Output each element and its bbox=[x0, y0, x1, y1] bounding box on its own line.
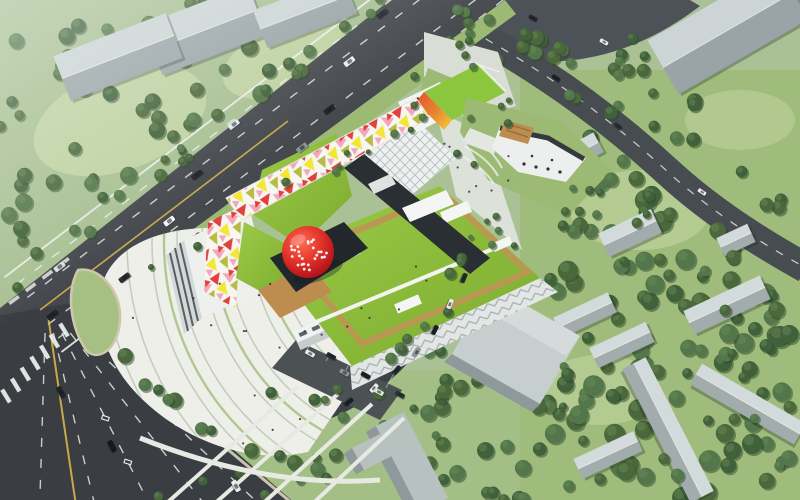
aerial-render bbox=[0, 0, 800, 500]
aerial-render-canvas: Aerial rendering of a mixed-use cultural… bbox=[0, 0, 800, 500]
atmosphere-haze bbox=[0, 0, 800, 500]
